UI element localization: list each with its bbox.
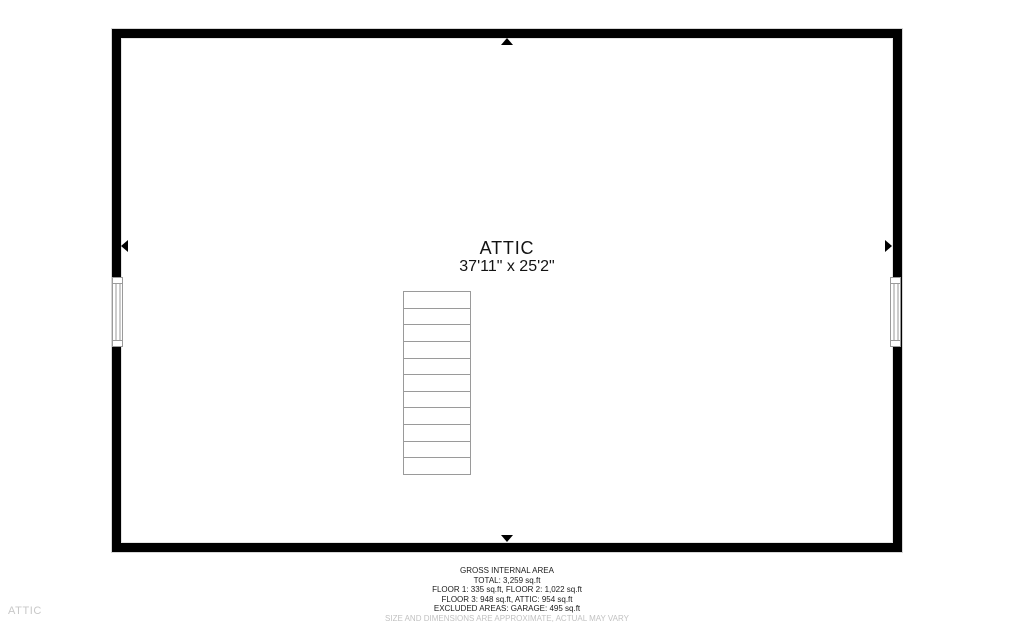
summary-excluded: EXCLUDED AREAS: GARAGE: 495 sq.ft	[0, 604, 1014, 614]
stair-step	[404, 342, 470, 359]
summary-floor3-attic: FLOOR 3: 948 sq.ft, ATTIC: 954 sq.ft	[0, 595, 1014, 605]
floorplan-page: ATTIC 37'11" x 25'2" GROSS INTERNAL AREA…	[0, 0, 1014, 629]
summary-heading: GROSS INTERNAL AREA	[0, 566, 1014, 576]
staircase	[403, 291, 471, 475]
window-right	[890, 277, 901, 347]
corner-floor-label: ATTIC	[8, 605, 42, 617]
stair-step	[404, 425, 470, 442]
window-frame-line	[891, 340, 900, 341]
summary-total: TOTAL: 3,259 sq.ft	[0, 576, 1014, 586]
stair-step	[404, 408, 470, 425]
stair-step	[404, 392, 470, 409]
stair-step	[404, 309, 470, 326]
stair-step	[404, 442, 470, 459]
stair-step	[404, 325, 470, 342]
stair-step	[404, 375, 470, 392]
attic-room-outline	[112, 29, 902, 552]
stair-step	[404, 292, 470, 309]
window-glass	[115, 283, 120, 341]
window-glass	[893, 283, 898, 341]
room-dimensions: 37'11" x 25'2"	[0, 258, 1014, 276]
room-name: ATTIC	[0, 238, 1014, 258]
area-summary: GROSS INTERNAL AREA TOTAL: 3,259 sq.ft F…	[0, 566, 1014, 623]
dimension-arrow-down-icon	[501, 535, 513, 542]
room-label: ATTIC 37'11" x 25'2"	[0, 238, 1014, 276]
dimension-arrow-up-icon	[501, 38, 513, 45]
wall-inner-edge	[121, 38, 893, 543]
stair-step	[404, 458, 470, 474]
window-left	[112, 277, 123, 347]
disclaimer-text: SIZE AND DIMENSIONS ARE APPROXIMATE, ACT…	[0, 614, 1014, 624]
stair-step	[404, 359, 470, 376]
summary-floors-1-2: FLOOR 1: 335 sq.ft, FLOOR 2: 1,022 sq.ft	[0, 585, 1014, 595]
window-frame-line	[113, 340, 122, 341]
